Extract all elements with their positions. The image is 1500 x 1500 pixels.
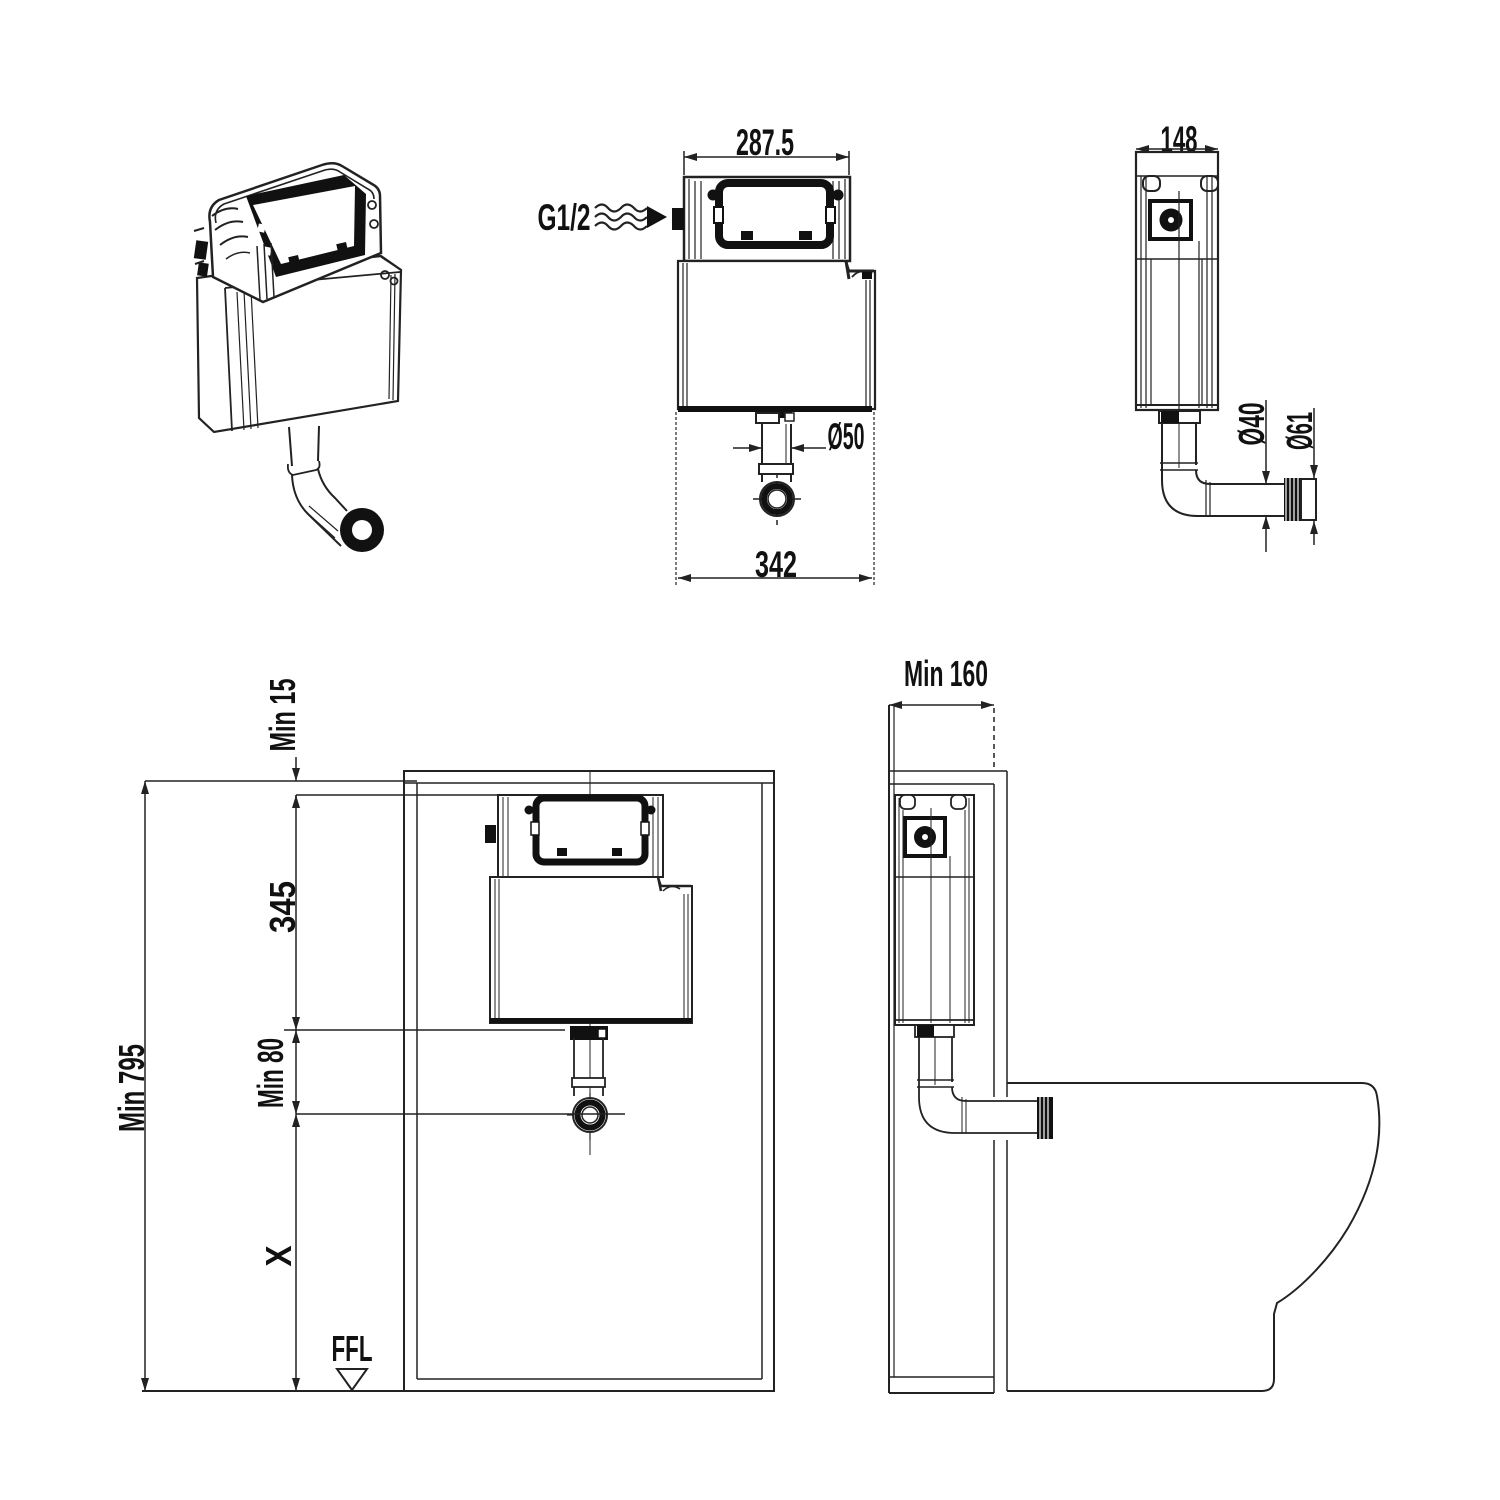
svg-text:345: 345 — [262, 881, 303, 933]
svg-text:G1/2: G1/2 — [538, 197, 591, 238]
svg-text:Min 160: Min 160 — [904, 653, 988, 694]
svg-text:Ø50: Ø50 — [828, 416, 865, 457]
svg-text:342: 342 — [755, 544, 797, 585]
svg-text:Min 15: Min 15 — [262, 679, 303, 752]
svg-text:FFL: FFL — [332, 1328, 373, 1369]
svg-text:Min 795: Min 795 — [111, 1044, 152, 1132]
svg-text:Min 80: Min 80 — [250, 1038, 291, 1108]
svg-text:X: X — [258, 1246, 299, 1267]
